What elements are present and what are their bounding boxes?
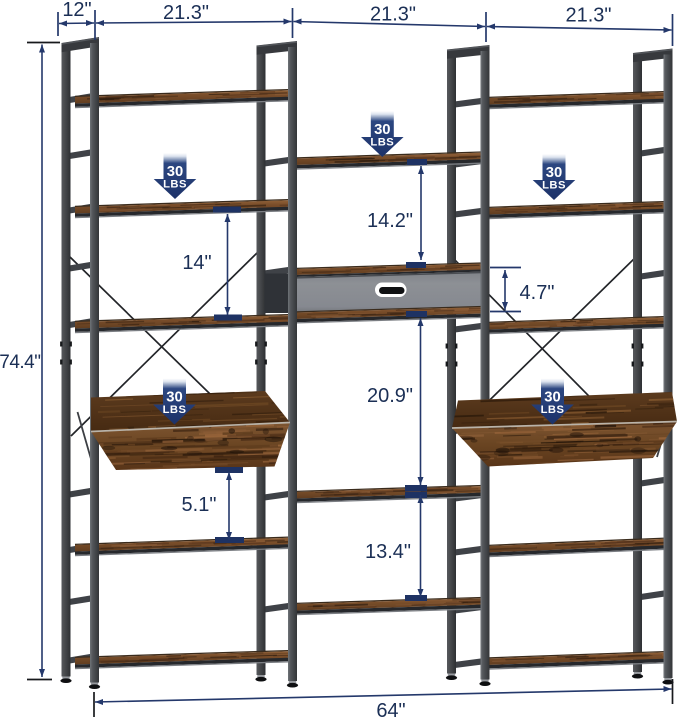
- svg-text:LBS: LBS: [370, 137, 394, 149]
- svg-text:LBS: LBS: [163, 404, 187, 416]
- svg-text:14": 14": [182, 252, 211, 274]
- svg-text:21.3": 21.3": [370, 4, 416, 26]
- svg-text:LBS: LBS: [163, 179, 187, 191]
- svg-text:12": 12": [62, 0, 91, 21]
- svg-text:64": 64": [376, 700, 405, 720]
- svg-text:5.1": 5.1": [182, 494, 217, 516]
- svg-text:4.7": 4.7": [520, 282, 555, 304]
- svg-text:74.4": 74.4": [0, 352, 41, 373]
- svg-text:LBS: LBS: [542, 180, 566, 192]
- svg-text:14.2": 14.2": [367, 210, 413, 232]
- svg-text:13.4": 13.4": [365, 541, 411, 563]
- svg-text:20.9": 20.9": [367, 385, 413, 407]
- svg-text:21.3": 21.3": [163, 2, 209, 24]
- svg-text:LBS: LBS: [541, 404, 565, 416]
- svg-text:21.3": 21.3": [565, 5, 611, 27]
